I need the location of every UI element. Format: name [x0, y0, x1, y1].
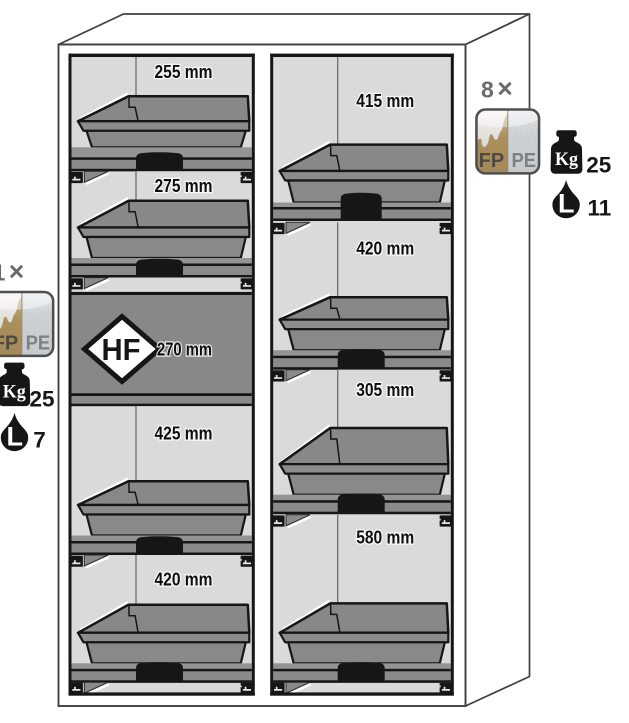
svg-text:11: 11 [588, 196, 612, 221]
svg-text:HF: HF [102, 332, 141, 367]
svg-text:Kg: Kg [555, 149, 578, 170]
svg-text:425 mm: 425 mm [155, 423, 213, 444]
svg-text:270 mm: 270 mm [157, 339, 212, 360]
svg-text:305 mm: 305 mm [356, 379, 414, 400]
svg-text:8 ×: 8 × [481, 74, 512, 104]
svg-text:PE: PE [26, 332, 51, 355]
svg-text:580 mm: 580 mm [356, 527, 414, 548]
svg-text:L: L [558, 189, 575, 219]
svg-text:255 mm: 255 mm [155, 61, 213, 82]
svg-text:25: 25 [586, 153, 611, 178]
svg-text:7: 7 [33, 427, 46, 452]
svg-text:420 mm: 420 mm [356, 238, 414, 259]
svg-text:FP: FP [479, 149, 505, 172]
svg-text:420 mm: 420 mm [155, 569, 213, 590]
svg-text:FP: FP [0, 332, 18, 355]
svg-text:1 ×: 1 × [0, 257, 24, 287]
svg-text:275 mm: 275 mm [155, 175, 213, 196]
svg-text:L: L [6, 421, 23, 451]
svg-text:415 mm: 415 mm [356, 90, 414, 111]
svg-text:PE: PE [512, 149, 536, 172]
svg-text:25: 25 [30, 386, 55, 411]
svg-text:Kg: Kg [3, 381, 26, 402]
